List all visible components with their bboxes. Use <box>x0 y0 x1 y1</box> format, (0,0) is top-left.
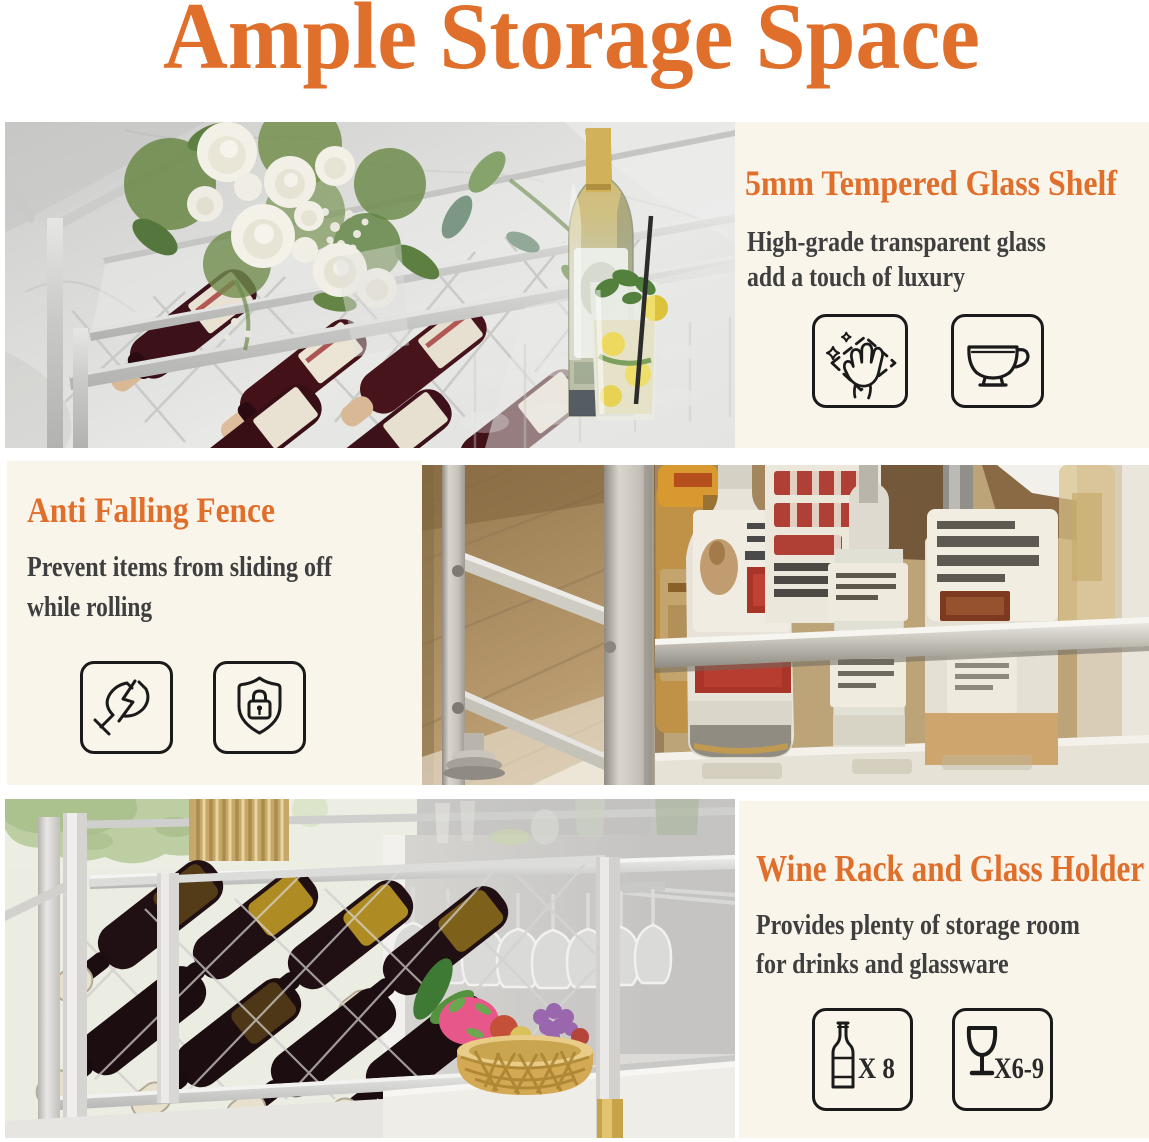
svg-text:X 8: X 8 <box>858 1052 895 1085</box>
svg-text:X6-9: X6-9 <box>994 1052 1044 1085</box>
